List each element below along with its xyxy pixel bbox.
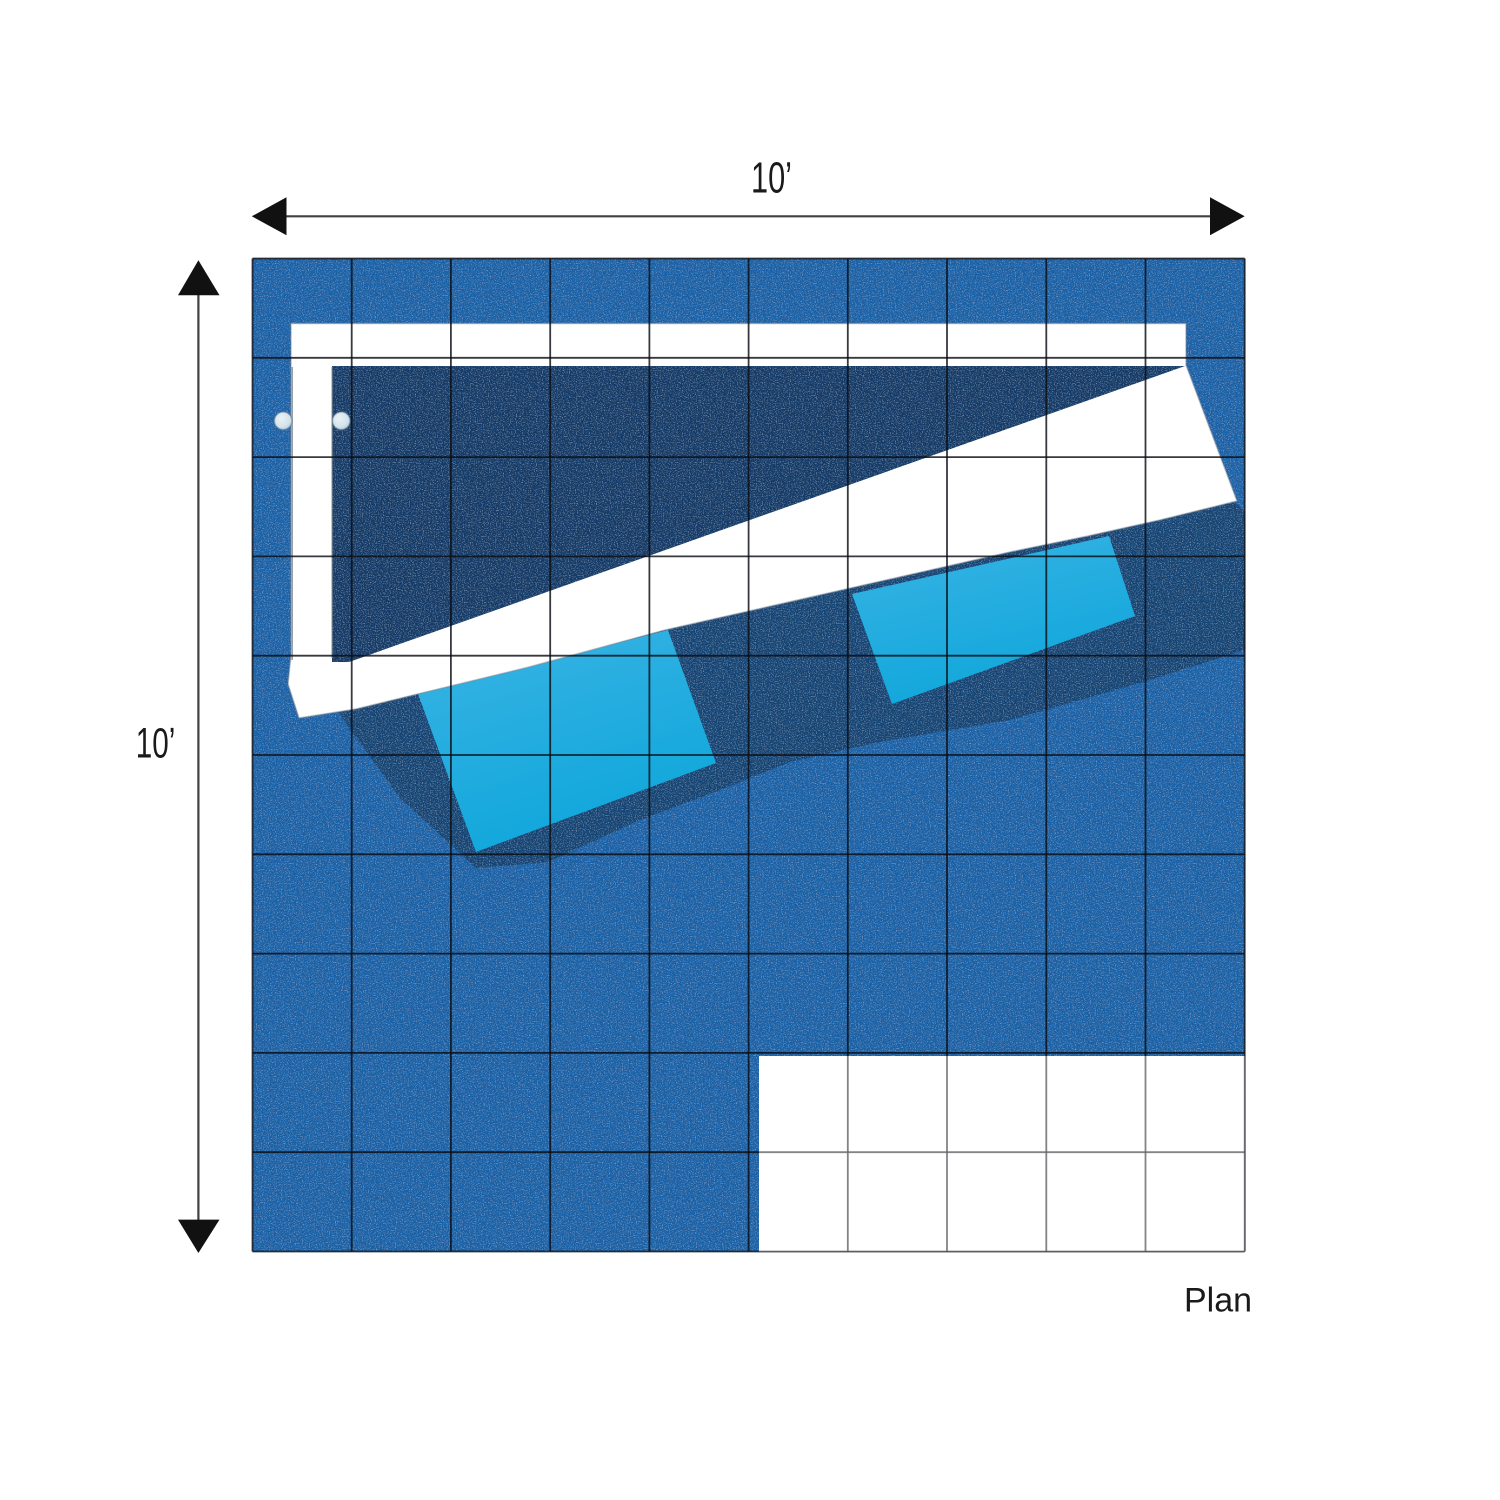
svg-text:10’: 10’ — [751, 154, 792, 203]
svg-text:Plan: Plan — [1184, 1281, 1252, 1319]
svg-text:10’: 10’ — [136, 720, 176, 768]
